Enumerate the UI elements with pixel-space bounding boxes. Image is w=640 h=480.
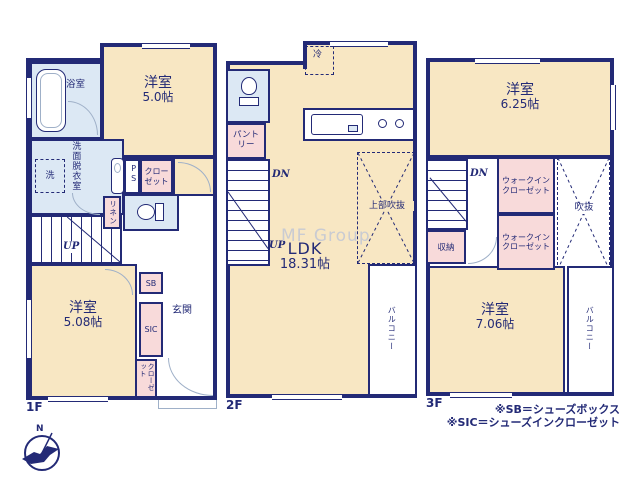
- sb-label: SB: [146, 279, 157, 288]
- floor1-closet-a: クローゼット: [140, 159, 173, 194]
- washer-space: 洗: [35, 159, 65, 193]
- toilet-icon: [241, 77, 257, 95]
- floor1-sic: SIC: [139, 302, 163, 357]
- floor1-ps: PS: [124, 159, 140, 194]
- fridge-space: 冷: [305, 46, 334, 75]
- door-arc-bath: [68, 101, 98, 135]
- floor1-bedroom-b-name: 洋室: [69, 300, 97, 316]
- toilet-icon: [137, 204, 155, 220]
- floor2-toilet: [226, 69, 270, 123]
- window: [450, 392, 512, 398]
- kitchen-counter: [303, 108, 415, 141]
- floor3-bedroom-b-size: 7.06帖: [476, 318, 515, 332]
- floor1-bedroom-b-size: 5.08帖: [64, 316, 103, 330]
- floor1-up-label: UP: [62, 241, 80, 253]
- window: [26, 78, 32, 118]
- floor1-closet-b-label: クローゼット: [139, 363, 155, 396]
- floor1-sb: SB: [139, 272, 163, 294]
- floor1-bedroom-b: [30, 264, 137, 398]
- door-arc-bedroom-a: [178, 162, 211, 192]
- floor2-balcony-label: バルコニー: [387, 306, 396, 361]
- floor-plan-page: { "colors":{"wall":"#232a76","room_tan":…: [0, 0, 640, 480]
- floor1-bath-label: 浴室: [66, 80, 85, 91]
- floor1-closet-a-label: クローゼット: [143, 167, 170, 185]
- kitchen-sink-icon: [311, 114, 363, 135]
- floor3-balcony-label: バルコニー: [585, 306, 594, 361]
- floor1-linen: リネン: [103, 196, 121, 229]
- floor1-bath: [30, 62, 102, 139]
- floor1-entrance-label: 玄関: [172, 305, 192, 317]
- window: [48, 396, 108, 402]
- floor1-tag: 1F: [26, 401, 43, 415]
- washer-label: 洗: [36, 160, 64, 192]
- floor2-open-above-label: 上部吹抜: [360, 201, 414, 211]
- floor3-bedroom-a-name: 洋室: [506, 82, 534, 98]
- floor3-wic-b: ウォークインクローゼット: [497, 214, 555, 270]
- toilet-tank-icon: [155, 203, 164, 221]
- floor1-washroom-label: 洗面脱衣室: [70, 141, 80, 213]
- window: [26, 300, 32, 358]
- floor1-bedroom-a-entry: [173, 159, 217, 196]
- legend-sic-note: ※SIC＝シューズインクローゼット: [340, 416, 620, 429]
- floor2-tag: 2F: [226, 399, 243, 413]
- floor3-bedroom-b-name: 洋室: [481, 302, 509, 318]
- bathtub-icon: [36, 69, 66, 132]
- window: [272, 394, 342, 400]
- floor2-dn-label: DN: [272, 169, 290, 181]
- floor3-bedroom-a-size: 6.25帖: [501, 98, 540, 112]
- storage-label: 収納: [437, 241, 454, 253]
- linen-label: リネン: [108, 200, 117, 228]
- window: [330, 41, 388, 47]
- watermark: MF Group: [281, 226, 371, 246]
- wic-b-label: ウォークインクローゼット: [501, 233, 551, 251]
- floor3-storage: 収納: [426, 230, 466, 264]
- wic-a-label: ウォークインクローゼット: [501, 176, 551, 194]
- compass: N: [14, 426, 68, 476]
- entrance-porch: [158, 400, 217, 409]
- floor3-wic-a: ウォークインクローゼット: [497, 157, 555, 214]
- floor1-bedroom-a-name: 洋室: [144, 75, 172, 91]
- floor1-closet-b: クローゼット: [135, 359, 157, 398]
- floor3-balcony: バルコニー: [567, 266, 614, 394]
- ps-label: PS: [129, 164, 138, 192]
- sic-label: SIC: [144, 325, 157, 334]
- door-arc-bedroom-b: [105, 269, 133, 295]
- floor2-pantry: パントリー: [226, 123, 266, 159]
- fridge-label: 冷: [313, 50, 322, 60]
- floor3-dn-label: DN: [470, 168, 488, 180]
- ldk-size: 18.31帖: [280, 258, 330, 273]
- floor1-bedroom-a-size: 5.0帖: [142, 91, 173, 105]
- floor2-balcony: バルコニー: [368, 264, 417, 396]
- window: [610, 85, 616, 130]
- window: [475, 58, 540, 64]
- floor3-void-label: 吹抜: [564, 203, 604, 214]
- floor1-toilet: [123, 194, 179, 231]
- kitchen-stove-icon: [375, 114, 411, 135]
- pantry-label: パントリー: [231, 131, 261, 151]
- toilet-tank-icon: [239, 97, 259, 106]
- window: [142, 43, 190, 49]
- washbasin-icon: [111, 158, 124, 194]
- legend-sb-note: ※SB＝シューズボックス: [340, 403, 620, 416]
- floor3-stairs: [426, 159, 468, 230]
- compass-north-label: N: [36, 424, 44, 434]
